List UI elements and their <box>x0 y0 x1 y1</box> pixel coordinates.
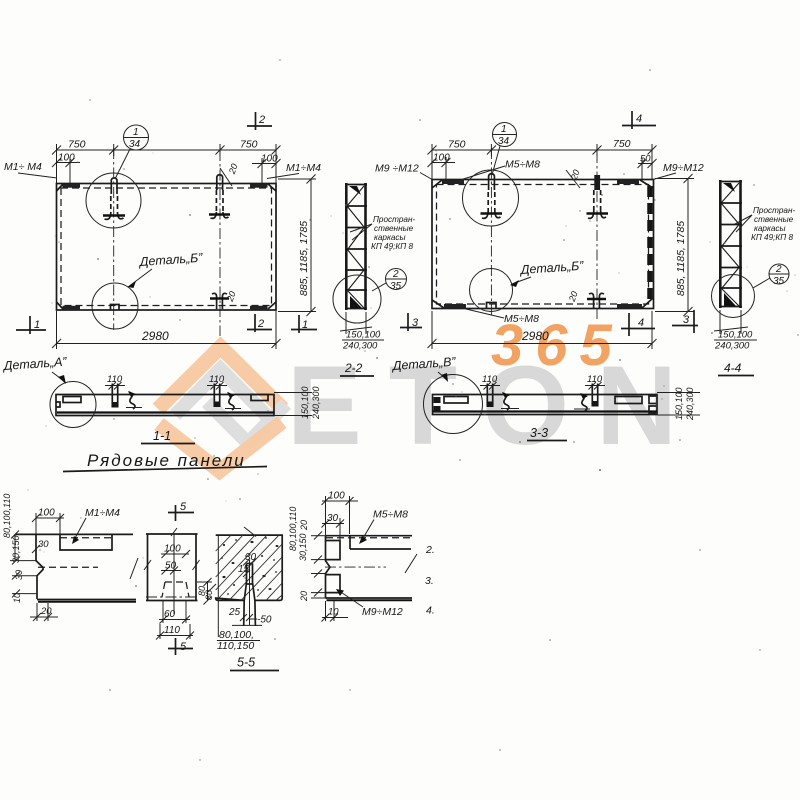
svg-text:М9÷М12: М9÷М12 <box>362 606 403 618</box>
svg-text:100: 100 <box>433 153 450 164</box>
svg-text:М5÷М8: М5÷М8 <box>373 509 408 521</box>
svg-text:34: 34 <box>498 136 510 147</box>
svg-text:110: 110 <box>482 374 498 385</box>
svg-text:Простран-: Простран- <box>373 215 415 224</box>
svg-text:60: 60 <box>164 609 176 620</box>
svg-text:30: 30 <box>38 539 49 550</box>
svg-text:750: 750 <box>448 139 466 151</box>
svg-text:750: 750 <box>240 139 258 151</box>
svg-text:50: 50 <box>165 561 177 572</box>
svg-text:110: 110 <box>209 374 225 385</box>
svg-text:110: 110 <box>107 374 123 385</box>
svg-text:20: 20 <box>40 606 52 617</box>
svg-text:110: 110 <box>164 625 180 636</box>
svg-text:80: 80 <box>204 590 214 600</box>
svg-text:240,300: 240,300 <box>685 387 695 421</box>
svg-text:3: 3 <box>412 317 419 329</box>
svg-text:1-1: 1-1 <box>153 429 171 443</box>
svg-text:2.: 2. <box>425 544 435 556</box>
svg-text:750: 750 <box>613 138 631 150</box>
svg-text:30,150: 30,150 <box>298 533 308 561</box>
svg-text:1: 1 <box>34 319 40 331</box>
svg-text:240,300: 240,300 <box>714 341 750 352</box>
svg-text:885, 1185, 1785: 885, 1185, 1785 <box>298 221 310 296</box>
svg-text:4-4: 4-4 <box>724 361 742 375</box>
svg-text:150,100: 150,100 <box>300 386 310 419</box>
svg-text:М9÷М12: М9÷М12 <box>663 162 704 174</box>
svg-text:100: 100 <box>38 508 55 519</box>
svg-text:2: 2 <box>392 269 399 280</box>
svg-text:34: 34 <box>129 139 141 150</box>
svg-text:М1÷М4: М1÷М4 <box>85 507 120 519</box>
svg-text:35: 35 <box>773 276 785 287</box>
svg-text:1: 1 <box>501 124 507 135</box>
svg-text:15: 15 <box>238 564 250 575</box>
svg-text:240,300: 240,300 <box>311 386 321 420</box>
svg-text:3-3: 3-3 <box>530 426 548 440</box>
svg-text:2: 2 <box>775 264 782 275</box>
svg-text:М1÷М4: М1÷М4 <box>286 162 321 174</box>
svg-text:20: 20 <box>299 520 309 531</box>
svg-text:М5÷М8: М5÷М8 <box>505 159 540 171</box>
svg-text:каркасы: каркасы <box>374 233 406 242</box>
svg-text:30,150: 30,150 <box>11 535 21 563</box>
svg-text:100: 100 <box>164 544 181 555</box>
svg-text:150,100: 150,100 <box>674 387 684 420</box>
svg-text:КП 49;КП 8: КП 49;КП 8 <box>371 242 413 251</box>
svg-text:5: 5 <box>180 501 187 513</box>
svg-text:5-5: 5-5 <box>237 656 255 670</box>
svg-text:1: 1 <box>133 127 139 138</box>
svg-text:КП 49;КП 8: КП 49;КП 8 <box>751 233 793 242</box>
svg-text:2: 2 <box>257 318 264 330</box>
svg-text:3: 3 <box>683 314 690 326</box>
svg-text:20: 20 <box>299 591 309 602</box>
svg-text:750: 750 <box>68 139 86 151</box>
svg-text:100: 100 <box>261 154 278 165</box>
svg-text:110: 110 <box>587 374 603 385</box>
svg-text:10: 10 <box>12 593 22 603</box>
svg-text:М5÷М8: М5÷М8 <box>504 313 539 325</box>
svg-text:1: 1 <box>302 319 308 331</box>
svg-text:Простран-: Простран- <box>753 206 795 215</box>
svg-text:М1÷ М4: М1÷ М4 <box>4 161 42 173</box>
svg-text:80,100,110: 80,100,110 <box>2 494 12 538</box>
svg-text:2-2: 2-2 <box>344 361 363 375</box>
svg-text:25: 25 <box>228 607 241 618</box>
svg-text:2: 2 <box>258 114 265 126</box>
svg-text:885, 1185, 1785: 885, 1185, 1785 <box>675 221 687 296</box>
svg-text:110,150: 110,150 <box>217 640 254 652</box>
svg-text:‑50: ‑50 <box>257 615 272 626</box>
svg-text:5: 5 <box>180 641 187 653</box>
svg-text:ственные: ственные <box>754 215 794 224</box>
svg-text:100: 100 <box>328 491 345 502</box>
svg-text:каркасы: каркасы <box>754 224 786 233</box>
svg-text:30: 30 <box>327 513 339 524</box>
svg-text:4: 4 <box>636 113 642 125</box>
svg-text:2980: 2980 <box>141 329 169 343</box>
svg-text:4: 4 <box>638 317 644 329</box>
svg-text:3.: 3. <box>425 575 434 587</box>
svg-text:240,300: 240,300 <box>342 341 378 352</box>
svg-text:2980: 2980 <box>521 329 549 343</box>
svg-text:80,100,110: 80,100,110 <box>288 507 298 551</box>
svg-text:4.: 4. <box>426 605 435 617</box>
svg-text:50: 50 <box>640 154 651 165</box>
svg-text:30: 30 <box>14 570 24 580</box>
svg-text:100: 100 <box>58 153 75 164</box>
svg-text:150,100: 150,100 <box>718 330 753 341</box>
svg-text:М9 ÷М12: М9 ÷М12 <box>375 163 419 175</box>
svg-text:150,100: 150,100 <box>346 330 381 341</box>
svg-text:35: 35 <box>390 281 402 292</box>
svg-text:ственные: ственные <box>374 224 414 233</box>
svg-text:10: 10 <box>328 607 339 618</box>
